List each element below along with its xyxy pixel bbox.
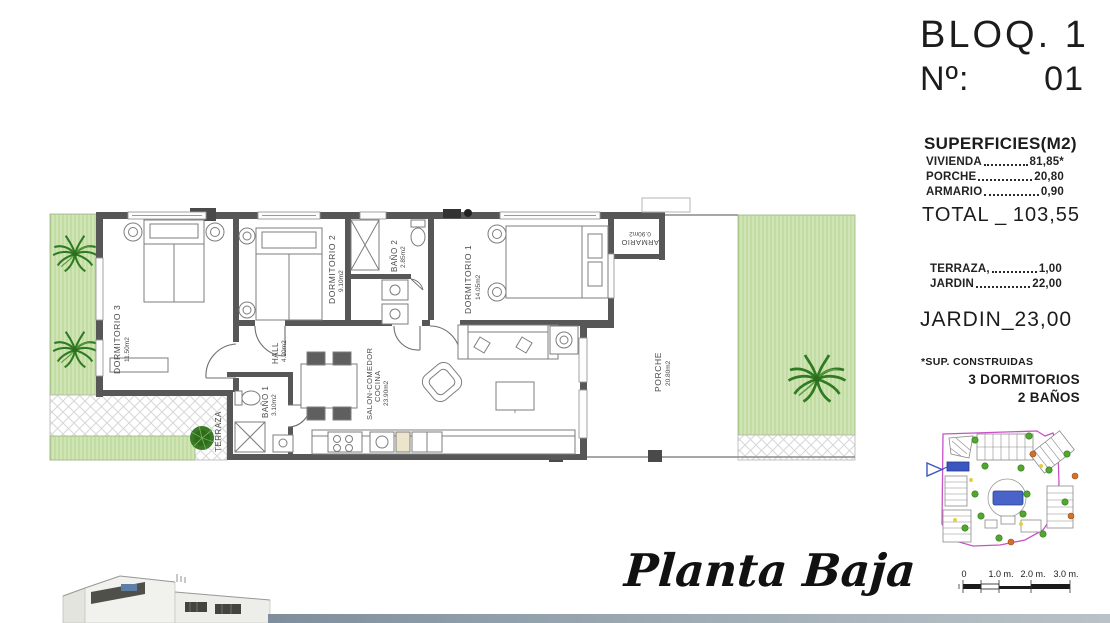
room-armario: ARMARIO — [621, 238, 659, 247]
room-hall: HALL — [271, 342, 280, 364]
sofa-icon — [458, 325, 558, 359]
room-dormitorio-3: DORMITORIO 3 — [112, 305, 122, 374]
garden-strip-left — [50, 214, 100, 395]
unit-number-value: 01 — [1044, 60, 1084, 99]
stove-icon — [328, 432, 362, 452]
room-dormitorio-2: DORMITORIO 2 — [327, 235, 337, 304]
sink-icon — [382, 280, 408, 324]
svg-text:20.80m2: 20.80m2 — [665, 360, 672, 386]
dotted-leader — [984, 164, 1028, 166]
svg-text:14.05m2: 14.05m2 — [475, 274, 482, 300]
scale-labels: 0 1.0 m. 2.0 m. 3.0 m. — [961, 569, 1078, 579]
scale-bar: 0 1.0 m. 2.0 m. 3.0 m. — [928, 566, 1108, 600]
bush-icon — [190, 426, 214, 450]
svg-text:3.10m2: 3.10m2 — [271, 394, 278, 416]
kitchen-counter — [312, 430, 575, 454]
surface-row-porche: PORCHE20,80 — [926, 171, 1064, 183]
program-summary: 3 DORMITORIOS 2 BAÑOS — [918, 371, 1080, 407]
floorplan-sheet: DORMITORIO 3 11.50m2 DORMITORIO 2 9.10m2… — [0, 0, 1110, 623]
vent-shaft — [642, 198, 690, 212]
room-bano-2: BAÑO 2 — [390, 240, 399, 272]
bed-icon — [506, 226, 608, 298]
svg-text:COCINA: COCINA — [373, 370, 382, 402]
shower-icon — [351, 220, 379, 270]
svg-text:0: 0 — [961, 569, 966, 579]
surface-row-vivienda: VIVIENDA81,85* — [926, 156, 1064, 168]
toilet-icon — [235, 391, 260, 405]
room-porche: PORCHE — [653, 352, 663, 392]
garden-band-bottom — [50, 436, 195, 460]
bed-icon — [144, 220, 204, 302]
dotted-leader — [984, 194, 1038, 196]
svg-text:0.90m2: 0.90m2 — [629, 230, 651, 237]
total-row: TOTAL _ 103,55 — [922, 204, 1080, 227]
block-title: BLOQ. 1 — [920, 14, 1089, 57]
surfaces-title: SUPERFICIES(M2) — [924, 134, 1077, 154]
svg-text:2.0 m.: 2.0 m. — [1020, 569, 1045, 579]
bedrooms-count: 3 DORMITORIOS — [918, 371, 1080, 389]
boiler-icon — [464, 209, 472, 217]
building-render-image — [25, 570, 285, 623]
plan-caption: Planta Baja — [613, 544, 927, 597]
room-terraza: TERRAZA — [214, 411, 223, 452]
svg-text:2.85m2: 2.85m2 — [400, 246, 407, 268]
site-plan-thumbnail — [925, 424, 1105, 566]
bed-icon — [256, 228, 322, 320]
garden-right — [738, 215, 855, 435]
scale-segments — [959, 580, 1070, 593]
footnote: *SUP. CONSTRUIDAS — [921, 356, 1033, 368]
jardin-total-row: JARDIN _ 23,00 — [920, 308, 1072, 332]
coffee-table-icon — [496, 382, 534, 410]
surface-row-jardin: JARDIN22,00 — [930, 278, 1062, 290]
toilet-icon — [411, 220, 425, 246]
unit-number-label: Nº: — [920, 60, 969, 99]
svg-text:23.90m2: 23.90m2 — [383, 380, 390, 406]
dining-table-icon — [301, 352, 357, 420]
photo-strip — [268, 614, 1110, 623]
svg-text:11.50m2: 11.50m2 — [124, 337, 131, 362]
highlighted-unit — [947, 462, 969, 471]
room-bano-1: BAÑO 1 — [261, 386, 270, 418]
svg-text:9.10m2: 9.10m2 — [338, 270, 345, 292]
porch-post — [648, 450, 662, 462]
svg-text:3.0 m.: 3.0 m. — [1053, 569, 1078, 579]
unit-number-row: Nº: 01 — [920, 60, 1084, 99]
shower-icon — [235, 422, 265, 452]
surface-row-armario: ARMARIO0,90 — [926, 186, 1064, 198]
pool-icon — [993, 491, 1023, 505]
svg-text:1.0 m.: 1.0 m. — [988, 569, 1013, 579]
dotted-leader — [992, 271, 1037, 273]
room-dormitorio-1: DORMITORIO 1 — [463, 245, 473, 314]
dotted-leader — [976, 286, 1030, 288]
svg-text:4.20m2: 4.20m2 — [281, 340, 288, 362]
floorplan-drawing: DORMITORIO 3 11.50m2 DORMITORIO 2 9.10m2… — [30, 192, 880, 482]
surface-row-terraza: TERRAZA,1,00 — [930, 263, 1062, 275]
armchair-icon — [419, 359, 466, 405]
dotted-leader — [978, 179, 1032, 181]
bathrooms-count: 2 BAÑOS — [918, 389, 1080, 407]
